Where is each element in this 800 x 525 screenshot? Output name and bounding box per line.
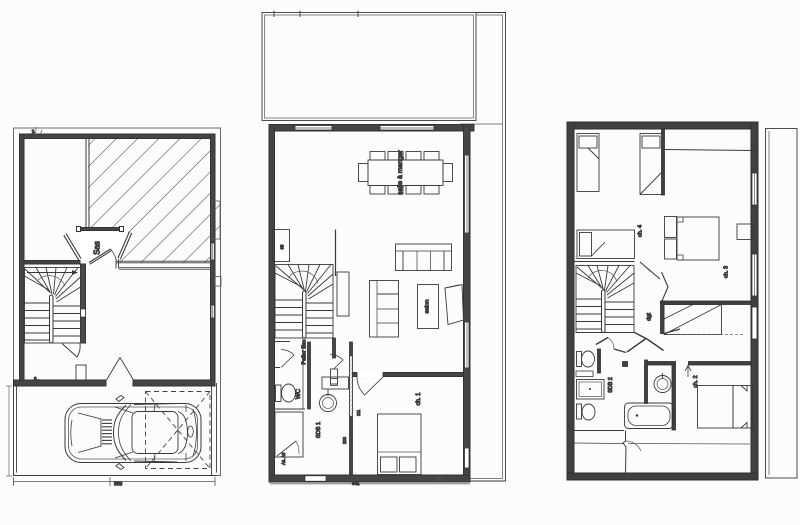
svg-text:200: 200 xyxy=(342,436,347,444)
svg-text:641: 641 xyxy=(352,481,360,486)
svg-text:WC: WC xyxy=(295,388,302,399)
svg-text:111: 111 xyxy=(356,409,361,416)
svg-text:ch. 4: ch. 4 xyxy=(638,225,644,237)
svg-text:SDB 1: SDB 1 xyxy=(316,422,322,438)
svg-text:salon: salon xyxy=(425,300,431,314)
svg-text:salle à manger: salle à manger xyxy=(397,149,404,194)
svg-text:SDB 2: SDB 2 xyxy=(608,377,614,393)
svg-text:ch. 3: ch. 3 xyxy=(724,266,730,278)
svg-text:869: 869 xyxy=(114,482,123,488)
svg-text:A3. A3: A3. A3 xyxy=(281,452,286,465)
svg-text:Sas: Sas xyxy=(93,241,102,255)
svg-text:Palier Esc: Palier Esc xyxy=(302,339,308,364)
svg-text:2.: 2. xyxy=(31,129,35,134)
svg-text:8 .: 8 . xyxy=(34,376,39,381)
svg-text:dgt: dgt xyxy=(647,313,653,321)
svg-text:95: 95 xyxy=(280,244,285,249)
svg-text:ch. 1: ch. 1 xyxy=(416,392,422,406)
